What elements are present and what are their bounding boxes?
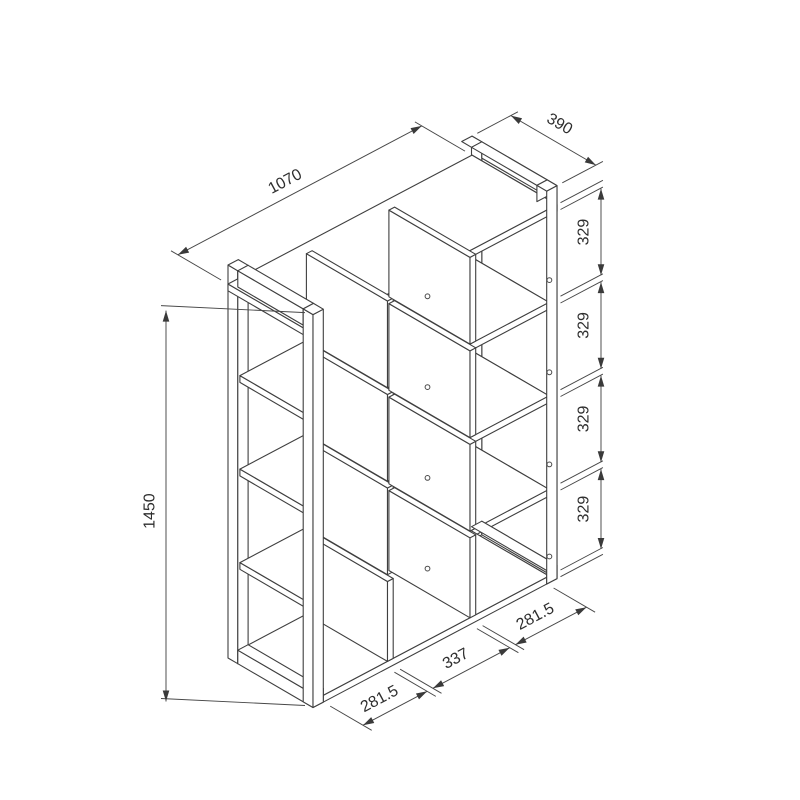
- divider-2-row-4-front-face: [470, 535, 476, 618]
- extension-line: [554, 588, 596, 612]
- extension-line: [561, 548, 603, 571]
- extension-line: [400, 669, 441, 693]
- divider-2-row-1-front-face: [470, 254, 476, 344]
- dimension-label: 337: [440, 645, 472, 673]
- extension-line: [477, 112, 518, 134]
- extension-line: [561, 281, 603, 303]
- cam-hole: [547, 278, 552, 283]
- post-front-right: [537, 180, 557, 584]
- cam-hole: [547, 370, 552, 375]
- cam-hole: [425, 385, 430, 390]
- extension-line: [483, 626, 524, 650]
- extension-line: [161, 699, 305, 706]
- extension-line: [561, 180, 603, 202]
- dimension-label: 281.5: [358, 682, 401, 716]
- dimension-label: 1450: [142, 493, 159, 529]
- dimension-label: 329: [576, 219, 593, 246]
- extension-line: [394, 672, 435, 696]
- shelf-dimension-drawing: 10703901450329329329329281.5337281.5: [0, 0, 800, 800]
- extension-line: [171, 251, 221, 280]
- post-front-left-front-face: [313, 309, 323, 707]
- extension-line: [561, 187, 603, 209]
- divider-2-row-2-front-face: [470, 348, 476, 438]
- extension-line: [561, 554, 603, 576]
- post-back-left-left-face: [228, 265, 238, 664]
- divider-1-row-4-front-face: [388, 579, 394, 662]
- dimension-label: 1070: [265, 166, 305, 198]
- divider-2-row-3-front-face: [470, 441, 476, 531]
- cam-hole: [425, 294, 430, 299]
- extension-line: [562, 161, 603, 182]
- post-back-left: [228, 260, 248, 664]
- cam-hole: [425, 566, 430, 571]
- post-front-left-left-face: [303, 309, 313, 708]
- dimension-rows: 329329329329: [561, 180, 603, 576]
- extension-line: [415, 122, 465, 151]
- diagram-page: 10703901450329329329329281.5337281.5: [0, 0, 800, 800]
- cam-hole: [425, 476, 430, 481]
- cam-hole: [547, 554, 552, 559]
- dimension-label: 390: [544, 110, 576, 138]
- post-front-right-front-face: [547, 186, 557, 584]
- post-back-left-front-face: [238, 265, 248, 663]
- extension-line: [561, 461, 603, 483]
- post-front-left: [303, 303, 323, 707]
- extension-line: [561, 468, 603, 490]
- dimension-label: 329: [576, 496, 593, 523]
- extension-line: [561, 367, 603, 389]
- dimension-label: 329: [576, 312, 593, 339]
- dimension-label: 281.5: [514, 600, 557, 634]
- extension-line: [477, 629, 519, 653]
- extension-line: [561, 374, 603, 396]
- shelf-structure: [228, 136, 557, 707]
- extension-line: [561, 274, 603, 296]
- cam-hole: [547, 462, 552, 467]
- dimension-label: 329: [576, 405, 593, 432]
